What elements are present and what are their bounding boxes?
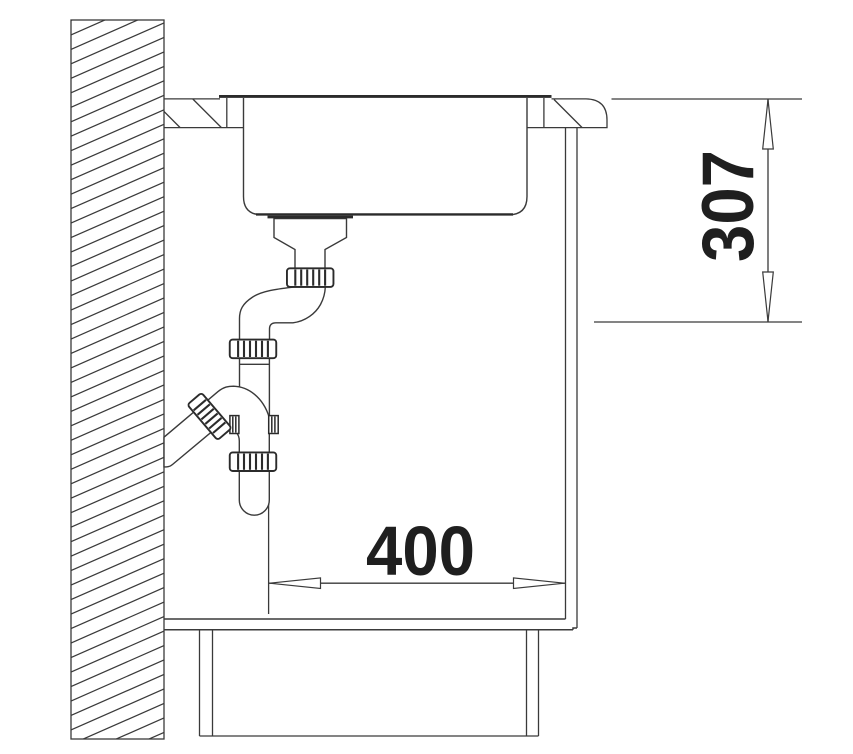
svg-text:400: 400 [366,512,475,590]
svg-text:307: 307 [688,150,769,262]
